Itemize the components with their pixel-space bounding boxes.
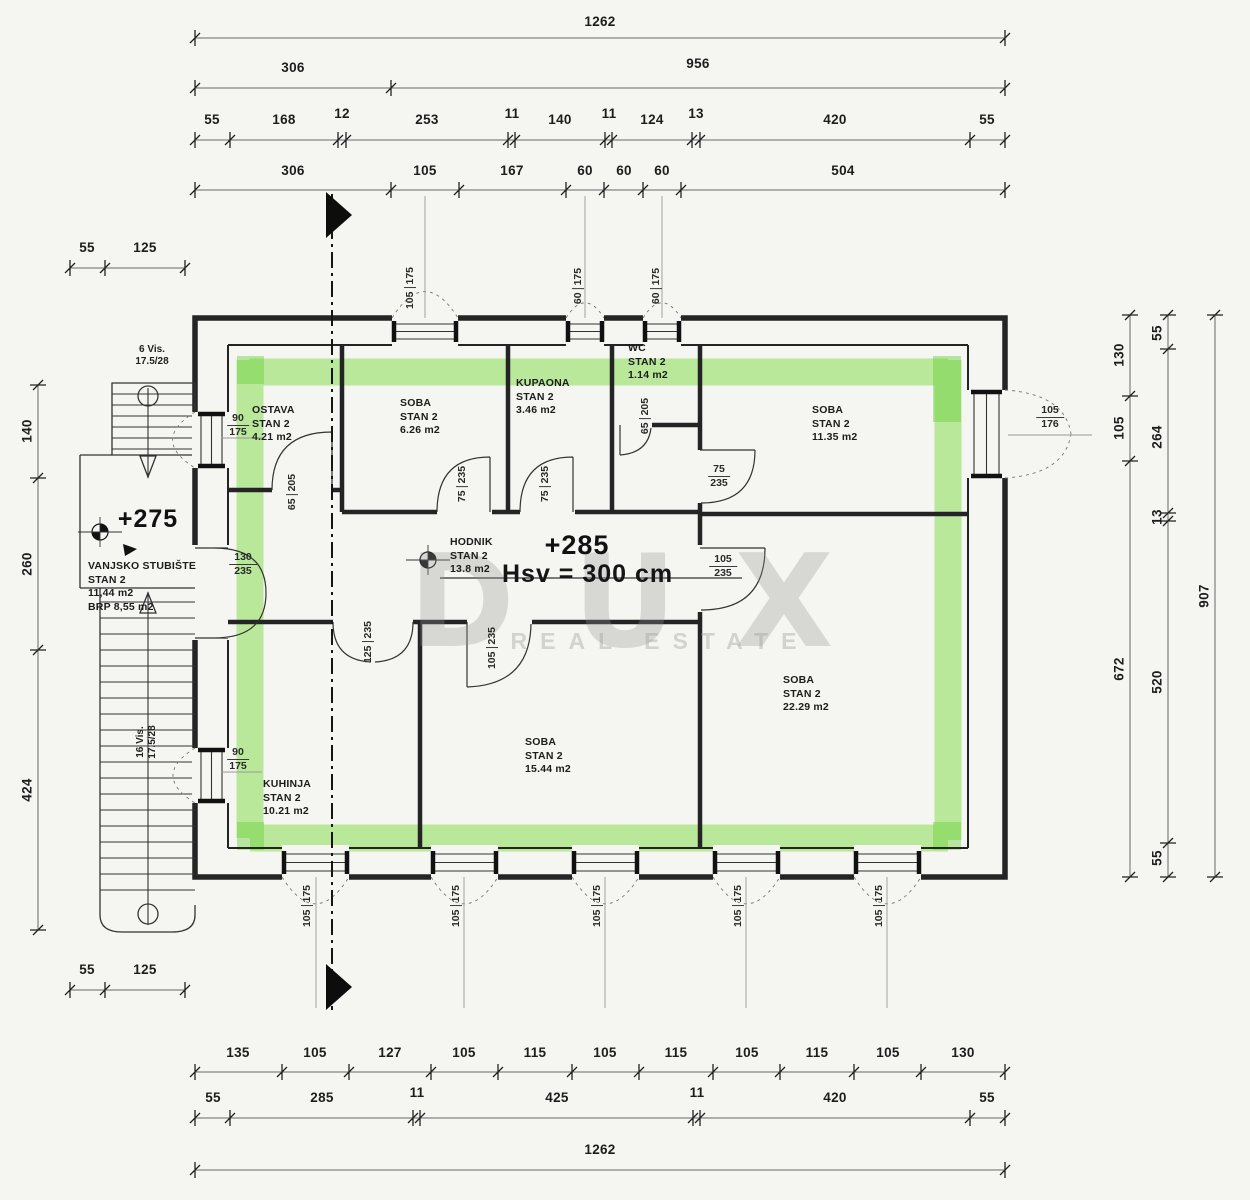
window-size-label: 90175 [227, 746, 249, 772]
room-label-wc: WCSTAN 21.14 m2 [628, 342, 668, 383]
room-label-soba-1544: SOBASTAN 215.44 m2 [525, 736, 571, 777]
dim-label: 167 [500, 163, 523, 178]
level-porch-flag [123, 544, 137, 556]
stairs-note-lower: 16 Vis.17.5/28 [135, 725, 159, 758]
section-line [326, 192, 352, 1010]
dim-label: 306 [281, 163, 304, 178]
window-size-label: 105175 [450, 882, 462, 930]
dim-label: 306 [281, 60, 304, 75]
room-label-ostava: OSTAVASTAN 24.21 m2 [252, 404, 295, 445]
dim-label: 11 [410, 1085, 425, 1100]
room-label-kupaona: KUPAONASTAN 23.46 m2 [516, 377, 570, 418]
door-size-label: 65205 [639, 395, 651, 437]
dim-label: 105 [452, 1045, 475, 1060]
dim-label: 115 [665, 1045, 688, 1060]
dim-label: 105 [735, 1045, 758, 1060]
dim-label: 425 [545, 1090, 568, 1105]
dim-label: 168 [272, 112, 295, 127]
dim-label: 140 [548, 112, 571, 127]
stairs-note-upper: 6 Vis.17.5/28 [135, 344, 168, 368]
dim-label: 115 [524, 1045, 547, 1060]
dim-label: 130 [951, 1045, 974, 1060]
room-label-kuhinja: KUHINJASTAN 210.21 m2 [263, 778, 311, 819]
dim-label: 1262 [584, 14, 615, 29]
dim-label: 127 [378, 1045, 401, 1060]
door-size-label: 105235 [709, 553, 737, 579]
dim-label: 125 [133, 962, 156, 977]
door-size-label: 65205 [286, 471, 298, 513]
dim-label: 1262 [584, 1142, 615, 1157]
room-label-soba-2229: SOBASTAN 222.29 m2 [783, 674, 829, 715]
dim-label: 135 [226, 1045, 249, 1060]
door-size-label: 130235 [229, 551, 257, 577]
room-label-hodnik: HODNIKSTAN 213.8 m2 [450, 536, 493, 577]
dim-label: 13 [688, 106, 704, 121]
level-mark-hodnik: +285 [545, 530, 610, 561]
dim-label: 130 [1112, 343, 1127, 366]
dim-label: 55 [204, 112, 220, 127]
dim-label: 55 [79, 240, 95, 255]
dim-label: 420 [823, 1090, 846, 1105]
dim-label: 907 [1197, 584, 1212, 607]
dim-label: 672 [1112, 657, 1127, 680]
section-arrow-top [326, 192, 352, 238]
dim-label: 60 [616, 163, 632, 178]
dim-label: 13 [1150, 509, 1165, 525]
dim-label: 105 [303, 1045, 326, 1060]
dim-label: 956 [686, 56, 709, 71]
window-size-label: 60175 [572, 265, 584, 307]
door-size-label: 75235 [708, 463, 730, 489]
dim-label: 115 [806, 1045, 829, 1060]
watermark-subtitle: REAL ESTATE [511, 628, 810, 655]
room-label-soba-1135: SOBASTAN 211.35 m2 [812, 404, 857, 445]
dim-label: 253 [415, 112, 438, 127]
dim-label: 105 [413, 163, 436, 178]
floor-plan-page: DUX REAL ESTATE 1262 306 956 55 168 12 2… [0, 0, 1250, 1200]
dim-label: 11 [505, 106, 520, 121]
room-label-soba-626: SOBASTAN 26.26 m2 [400, 397, 440, 438]
window-size-label: 105175 [591, 882, 603, 930]
dim-label: 55 [205, 1090, 221, 1105]
dim-label: 260 [20, 552, 35, 575]
dim-label: 60 [577, 163, 593, 178]
dim-label: 285 [310, 1090, 333, 1105]
dim-label: 124 [640, 112, 663, 127]
door-size-label: 125235 [362, 618, 374, 666]
dim-label: 140 [20, 419, 35, 442]
room-label-vanjsko-stubiste: VANJSKO STUBIŠTESTAN 2 11,44 m2BRP 8,55 … [88, 560, 196, 614]
dim-label: 60 [654, 163, 670, 178]
level-mark-porch: +275 [118, 505, 178, 534]
window-size-label: 105175 [404, 264, 416, 312]
dim-label: 105 [876, 1045, 899, 1060]
dim-label: 55 [1150, 850, 1165, 866]
door-size-label: 75235 [539, 463, 551, 505]
door-size-label: 75235 [456, 463, 468, 505]
dim-label: 125 [133, 240, 156, 255]
dim-label: 55 [1150, 325, 1165, 341]
dim-label: 11 [690, 1085, 705, 1100]
dim-label: 55 [979, 112, 995, 127]
dim-label: 520 [1150, 670, 1165, 693]
window-size-label: 60175 [650, 265, 662, 307]
dim-label: 55 [79, 962, 95, 977]
dim-label: 264 [1150, 425, 1165, 448]
window-size-label: 105176 [1036, 404, 1064, 430]
exterior-staircase [80, 383, 195, 932]
dim-label: 424 [20, 778, 35, 801]
window-size-label: 105175 [873, 882, 885, 930]
dim-label: 420 [823, 112, 846, 127]
dim-label: 105 [593, 1045, 616, 1060]
dim-label: 55 [979, 1090, 995, 1105]
dim-label: 12 [334, 106, 350, 121]
window-size-label: 105175 [301, 882, 313, 930]
dim-label: 504 [831, 163, 854, 178]
section-arrow-bottom [326, 964, 352, 1010]
dim-label: 105 [1112, 416, 1127, 439]
window-size-label: 90175 [227, 412, 249, 438]
door-size-label: 105235 [486, 624, 498, 672]
window-size-label: 105175 [732, 882, 744, 930]
dim-label: 11 [602, 106, 617, 121]
ceiling-height-note: Hsv = 300 cm [502, 560, 673, 589]
